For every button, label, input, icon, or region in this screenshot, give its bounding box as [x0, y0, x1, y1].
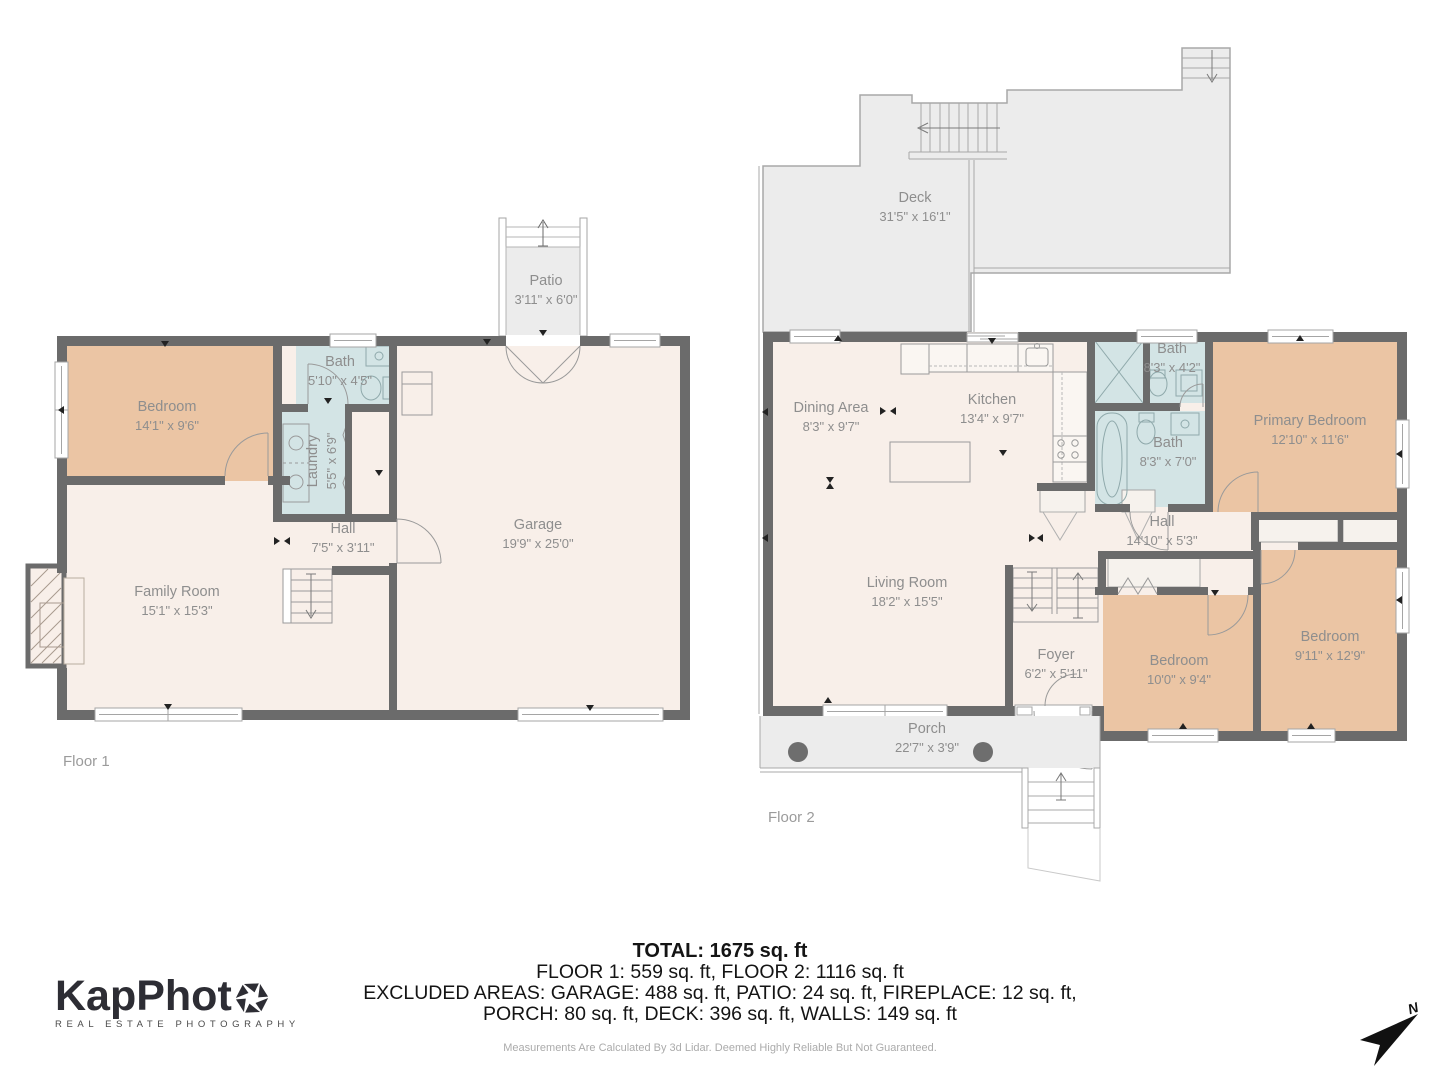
disclaimer-text: Measurements Are Calculated By 3d Lidar.… [0, 1042, 1440, 1054]
patio-area [499, 218, 587, 336]
primary-bedroom-fill [1213, 341, 1398, 512]
company-logo: KapPhot REAL ESTATE PHOTOGRAPHY [55, 974, 300, 1030]
stairs-f1 [283, 569, 332, 623]
bath-f1-fill [296, 341, 396, 408]
fireplace [28, 566, 84, 666]
floor2-plan [759, 48, 1409, 881]
stairs-f2 [1013, 568, 1098, 622]
logo-wordmark: KapPhot [55, 974, 232, 1018]
porch-post [973, 742, 993, 762]
bedroom-left-fill [1103, 595, 1253, 732]
floor2-label: Floor 2 [768, 809, 815, 826]
total-area: TOTAL: 1675 sq. ft [0, 941, 1440, 962]
floorplan-page: Bedroom 14'1" x 9'6" Bath 5'10" x 4'5" L… [0, 0, 1440, 1080]
bedroom-f1-fill [62, 341, 278, 481]
logo-tagline: REAL ESTATE PHOTOGRAPHY [55, 1019, 300, 1030]
floor1-plan [28, 218, 690, 721]
porch-area [760, 716, 1100, 881]
porch-stairs [1022, 768, 1100, 881]
garage-utility-box [402, 372, 432, 415]
compass: N [1348, 1000, 1438, 1072]
floor1-label: Floor 1 [63, 753, 110, 770]
floorplan-drawing [0, 0, 1440, 930]
aperture-icon [233, 979, 271, 1017]
north-arrow-icon [1348, 1000, 1438, 1072]
porch-post [788, 742, 808, 762]
